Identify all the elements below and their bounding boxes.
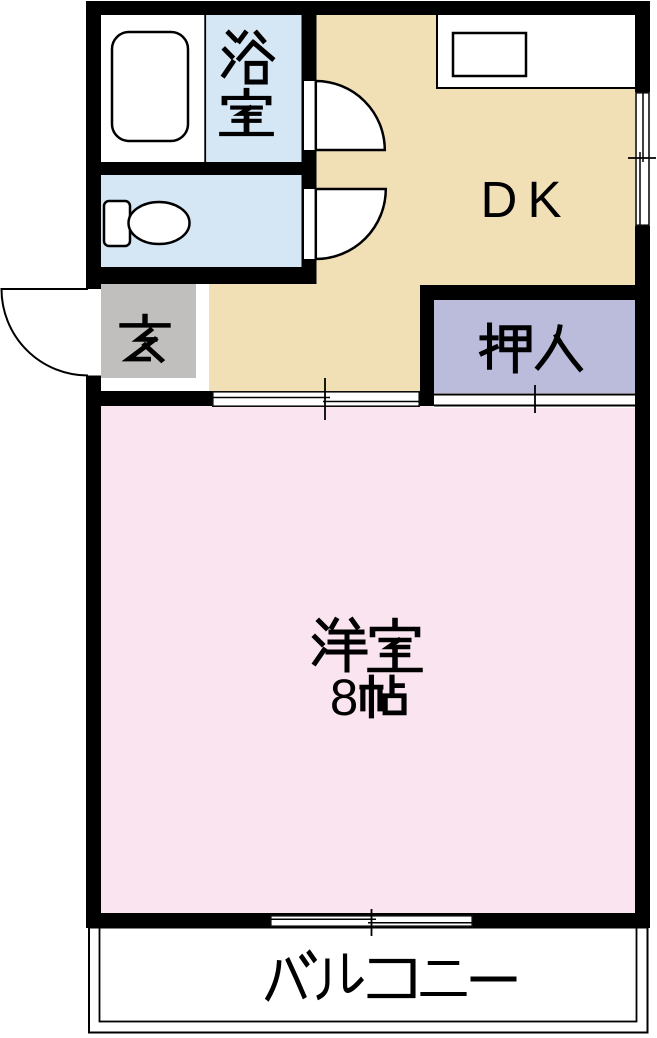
svg-text:D K: D K — [480, 171, 561, 228]
svg-text:8: 8 — [330, 669, 358, 726]
